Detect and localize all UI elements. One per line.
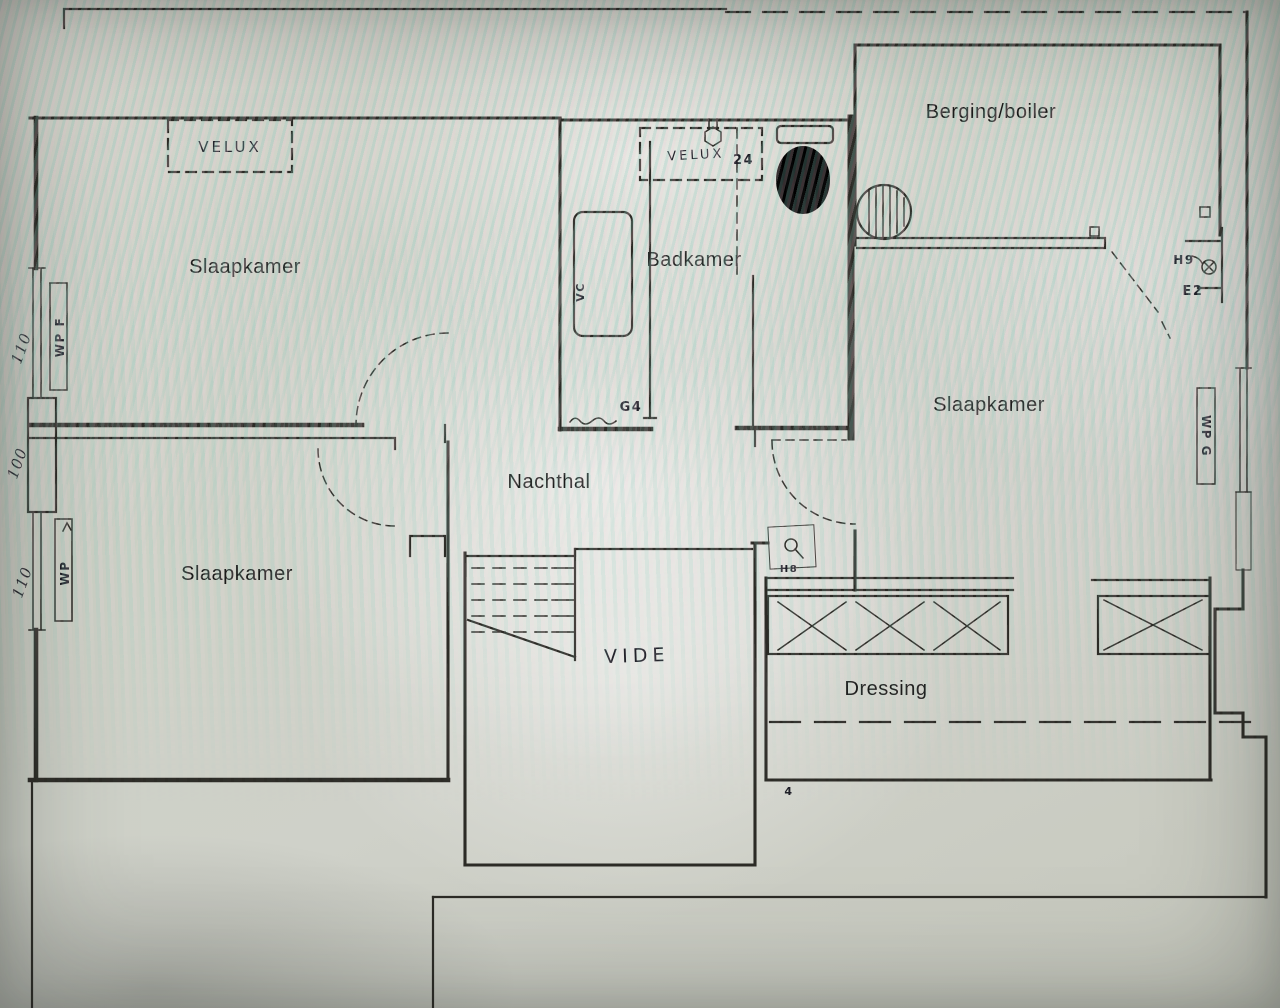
stair-break-line — [468, 620, 575, 657]
dimension-label: 110 — [8, 564, 36, 600]
room-label-berging: Berging/boiler — [926, 101, 1056, 123]
velux-label: VELUX — [667, 147, 725, 165]
room-label-dressing: Dressing — [845, 678, 928, 700]
boiler-circle — [857, 185, 911, 239]
socket-symbol-icon — [1090, 227, 1099, 236]
vide-walls — [465, 545, 755, 865]
stairs-icon — [468, 549, 575, 660]
window-label-wp: WP — [58, 560, 72, 585]
stair-treads-dashed — [472, 568, 552, 632]
center-strip-walls — [560, 118, 656, 430]
fixture-label-h9: H9 — [1173, 253, 1194, 267]
room-label-nachthal: Nachthal — [508, 471, 591, 493]
duct-label-vc: VC — [574, 282, 587, 302]
velux-label: VELUX — [198, 138, 262, 156]
boiler-icon — [857, 185, 911, 239]
window-right — [1236, 368, 1251, 492]
right-window — [1197, 368, 1251, 570]
dressing-walls — [766, 578, 1256, 780]
wardrobe-cross-hatch — [778, 602, 1000, 650]
wall — [644, 142, 656, 418]
slaapkamer-top-left-walls — [30, 120, 448, 780]
dimension-label: 110 — [7, 330, 35, 366]
hall-stairs-vide — [410, 531, 855, 865]
wall-double — [857, 238, 1105, 248]
paper-highlight — [768, 525, 816, 569]
bathtub-icon — [574, 212, 632, 336]
door-swing-arc — [318, 449, 395, 526]
door-swing-arc — [772, 441, 855, 524]
wall-pier-right — [1236, 492, 1251, 570]
vent-symbol-icon — [705, 119, 721, 146]
arrow-up-icon — [63, 523, 71, 531]
wall-light-icon — [785, 539, 803, 558]
wall-pier-100 — [28, 398, 56, 512]
handwriting-scribble — [570, 418, 616, 424]
toilet-cistern — [777, 126, 833, 143]
door-swing-arc — [356, 333, 448, 425]
window-label-wp-f: WP F — [53, 317, 67, 357]
labels: Slaapkamer Badkamer Berging/boiler Slaap… — [3, 101, 1213, 798]
floorplan-photo: Slaapkamer Badkamer Berging/boiler Slaap… — [0, 0, 1280, 1008]
room-label-slaapkamer-bottom-left: Slaapkamer — [181, 563, 293, 585]
door-swing-dashed — [1112, 252, 1170, 338]
stair-top-edge — [465, 549, 752, 556]
wall-notch — [410, 536, 445, 556]
room-label-badkamer: Badkamer — [646, 249, 741, 271]
wall-top — [64, 9, 726, 28]
fixture-label-e2: E2 — [1183, 284, 1204, 299]
fixture-label-g4: G4 — [620, 400, 643, 415]
berging-walls — [855, 45, 1222, 338]
wardrobe-cross-hatch — [1104, 600, 1202, 650]
velux-number-label: 24 — [733, 153, 754, 168]
ceiling-light-icon — [1192, 256, 1216, 274]
pen-mark: 4 — [784, 785, 793, 798]
socket-symbol-icon — [1200, 207, 1210, 217]
toilet-icon — [776, 126, 833, 214]
vide-label: VIDE — [604, 644, 670, 668]
badkamer-walls — [560, 118, 855, 524]
room-label-slaapkamer-right: Slaapkamer — [933, 394, 1045, 416]
wall — [30, 438, 395, 449]
floorplan-svg: Slaapkamer Badkamer Berging/boiler Slaap… — [0, 0, 1280, 1008]
window-left-top — [29, 268, 45, 398]
window-label-wp-g: WP G — [1199, 415, 1213, 457]
outer-walls — [30, 9, 1266, 1008]
fixture-label-h8: H8 — [780, 564, 798, 575]
toilet-drain — [794, 179, 812, 201]
wall-right-stepped — [1215, 570, 1266, 897]
room-label-slaapkamer-top-left: Slaapkamer — [189, 256, 301, 278]
boiler-hatch — [869, 185, 904, 239]
wall-double — [766, 578, 1210, 590]
stair-treads — [552, 568, 575, 632]
